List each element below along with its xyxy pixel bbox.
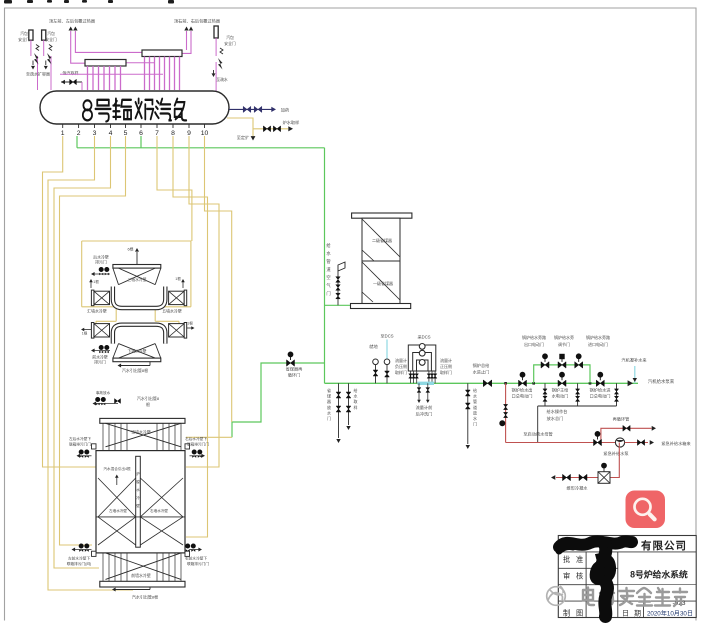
svg-text:2: 2 — [77, 130, 81, 137]
svg-text:口总电动门: 口总电动门 — [512, 393, 533, 400]
svg-text:根: 根 — [146, 401, 150, 407]
svg-text:联箱排污门门: 联箱排污门门 — [187, 442, 209, 447]
svg-text:后冲洗门: 后冲洗门 — [416, 411, 433, 418]
svg-text:水电动门: 水电动门 — [552, 393, 569, 400]
svg-text:采DCS: 采DCS — [417, 334, 430, 341]
svg-text:下锅水冷壁: 下锅水冷壁 — [128, 349, 147, 354]
svg-text:日: 日 — [622, 610, 629, 618]
svg-text:5: 5 — [124, 130, 128, 137]
svg-text:审: 审 — [563, 572, 570, 581]
svg-text:1: 1 — [61, 130, 65, 137]
svg-text:口总电动门: 口总电动门 — [590, 393, 611, 400]
svg-text:1根: 1根 — [175, 276, 181, 281]
svg-text:有限公司: 有限公司 — [641, 539, 687, 552]
svg-text:锅炉给水旁路: 锅炉给水旁路 — [586, 334, 610, 340]
svg-text:锅炉给水旁: 锅炉给水旁 — [554, 334, 574, 340]
svg-text:汽水引出管8: 汽水引出管8 — [137, 395, 160, 401]
svg-text:联箱排污门(闷): 联箱排污门(闷) — [67, 561, 92, 566]
svg-text:左后水冷壁下: 左后水冷壁下 — [69, 436, 91, 441]
svg-text:安全门: 安全门 — [224, 41, 236, 46]
svg-text:1根: 1根 — [93, 279, 99, 284]
svg-text:省煤器再: 省煤器再 — [286, 366, 304, 373]
svg-text:流量计: 流量计 — [395, 357, 407, 363]
svg-text:维形冷凝水: 维形冷凝水 — [567, 485, 589, 492]
svg-text:安全门: 安全门 — [18, 37, 30, 42]
svg-text:流量计前: 流量计前 — [416, 404, 433, 411]
svg-text:至定扩: 至定扩 — [237, 134, 250, 141]
svg-text:汽水混合引出4根: 汽水混合引出4根 — [103, 466, 131, 471]
svg-text:1根: 1根 — [82, 331, 88, 336]
svg-text:3: 3 — [93, 130, 97, 137]
svg-text:联箱排污门门: 联箱排污门门 — [187, 561, 209, 566]
svg-text:水进止门: 水进止门 — [473, 369, 490, 376]
svg-text:给水管道放水门: 给水管道放水门 — [473, 387, 477, 427]
svg-text:进口电动门: 进口电动门 — [588, 341, 608, 347]
svg-text:左墙水冷壁: 左墙水冷壁 — [109, 508, 127, 513]
svg-text:锅炉给水出: 锅炉给水出 — [512, 387, 533, 394]
svg-text:汽水引出管8根: 汽水引出管8根 — [132, 594, 158, 600]
svg-text:至疏水扩容器: 至疏水扩容器 — [26, 71, 50, 77]
svg-text:6根: 6根 — [127, 247, 133, 252]
svg-text:给水操作台: 给水操作台 — [547, 408, 568, 415]
svg-text:4: 4 — [109, 130, 113, 137]
svg-text:准: 准 — [576, 555, 583, 564]
svg-text:一级省煤器: 一级省煤器 — [373, 280, 393, 286]
svg-text:放水总门: 放水总门 — [547, 415, 564, 422]
svg-text:汽机给水泵来: 汽机给水泵来 — [648, 378, 675, 385]
svg-text:排污门: 排污门 — [95, 260, 107, 265]
svg-text:右后水冷壁下: 右后水冷壁下 — [185, 436, 207, 441]
svg-text:顶右前、右后包覆过热器: 顶右前、右后包覆过热器 — [174, 18, 221, 25]
svg-text:8: 8 — [171, 130, 175, 137]
svg-text:正压侧: 正压侧 — [440, 363, 452, 369]
svg-text:五墙水冷壁: 五墙水冷壁 — [162, 309, 182, 314]
svg-text:再循环管: 再循环管 — [613, 416, 630, 423]
svg-text:核: 核 — [576, 572, 583, 581]
svg-text:紧急补给水箱来: 紧急补给水箱来 — [661, 440, 691, 447]
svg-text:循环门: 循环门 — [288, 372, 301, 379]
svg-text:锅炉总给: 锅炉总给 — [473, 362, 490, 369]
svg-text:期: 期 — [634, 610, 641, 618]
svg-text:取样门: 取样门 — [395, 369, 407, 375]
svg-text:左前水冷壁下: 左前水冷壁下 — [68, 556, 90, 561]
svg-text:至DCS: 至DCS — [380, 334, 393, 339]
svg-text:批: 批 — [563, 555, 570, 564]
svg-text:10: 10 — [201, 130, 209, 137]
svg-text:汽水引出管8根: 汽水引出管8根 — [122, 367, 148, 373]
svg-text:饱墙水冷壁: 饱墙水冷壁 — [131, 430, 151, 435]
svg-text:右墙水冷壁: 右墙水冷壁 — [150, 508, 168, 513]
svg-text:1根: 1根 — [187, 321, 193, 326]
svg-text:就地: 就地 — [369, 343, 378, 350]
svg-text:顶左前、左后包覆过热器: 顶左前、左后包覆过热器 — [49, 18, 96, 25]
svg-text:汽包: 汽包 — [47, 31, 55, 36]
svg-text:锅炉给水进: 锅炉给水进 — [590, 387, 612, 394]
svg-text:事故放水: 事故放水 — [96, 390, 111, 395]
svg-text:汇墙水冷壁: 汇墙水冷壁 — [87, 309, 107, 314]
svg-text:锅炉主给: 锅炉主给 — [552, 387, 569, 394]
svg-text:取样门: 取样门 — [440, 369, 452, 375]
svg-text:汽包: 汽包 — [20, 31, 28, 36]
svg-text:调节门: 调节门 — [558, 341, 570, 347]
svg-text:右前水冷壁下: 右前水冷壁下 — [185, 556, 207, 561]
svg-text:给水取样: 给水取样 — [354, 387, 358, 410]
svg-text:炉水取样: 炉水取样 — [283, 119, 300, 126]
svg-text:紧急补给水泵: 紧急补给水泵 — [603, 450, 628, 457]
svg-text:锅炉给水旁路: 锅炉给水旁路 — [522, 334, 546, 340]
svg-text:安全门: 安全门 — [45, 37, 57, 42]
svg-text:图: 图 — [576, 609, 583, 618]
svg-text:至启动疏水母管: 至启动疏水母管 — [523, 431, 552, 438]
svg-text:汽包: 汽包 — [226, 35, 234, 40]
svg-text:2020年10月30日: 2020年10月30日 — [647, 610, 693, 618]
svg-text:8号炉给水系统: 8号炉给水系统 — [630, 569, 688, 580]
svg-text:负压侧: 负压侧 — [395, 363, 407, 369]
svg-text:6: 6 — [139, 130, 143, 137]
svg-text:三墙水冷壁: 三墙水冷壁 — [128, 277, 147, 282]
svg-text:加药: 加药 — [281, 107, 289, 114]
svg-text:7: 7 — [155, 130, 159, 137]
svg-text:制: 制 — [563, 609, 570, 618]
svg-text:汽机凝补水来: 汽机凝补水来 — [621, 357, 647, 364]
svg-text:二级省煤器: 二级省煤器 — [372, 237, 392, 243]
svg-text:前墙水冷壁: 前墙水冷壁 — [131, 573, 151, 578]
svg-text:出口电动门: 出口电动门 — [524, 341, 544, 347]
svg-text:排污门: 排污门 — [94, 360, 106, 365]
svg-text:联箱排污门门: 联箱排污门门 — [69, 442, 91, 447]
svg-text:省煤器放水门: 省煤器放水门 — [327, 387, 331, 421]
svg-text:至疏水: 至疏水 — [216, 77, 228, 82]
svg-text:9: 9 — [187, 130, 191, 137]
svg-text:流量计: 流量计 — [440, 357, 452, 363]
